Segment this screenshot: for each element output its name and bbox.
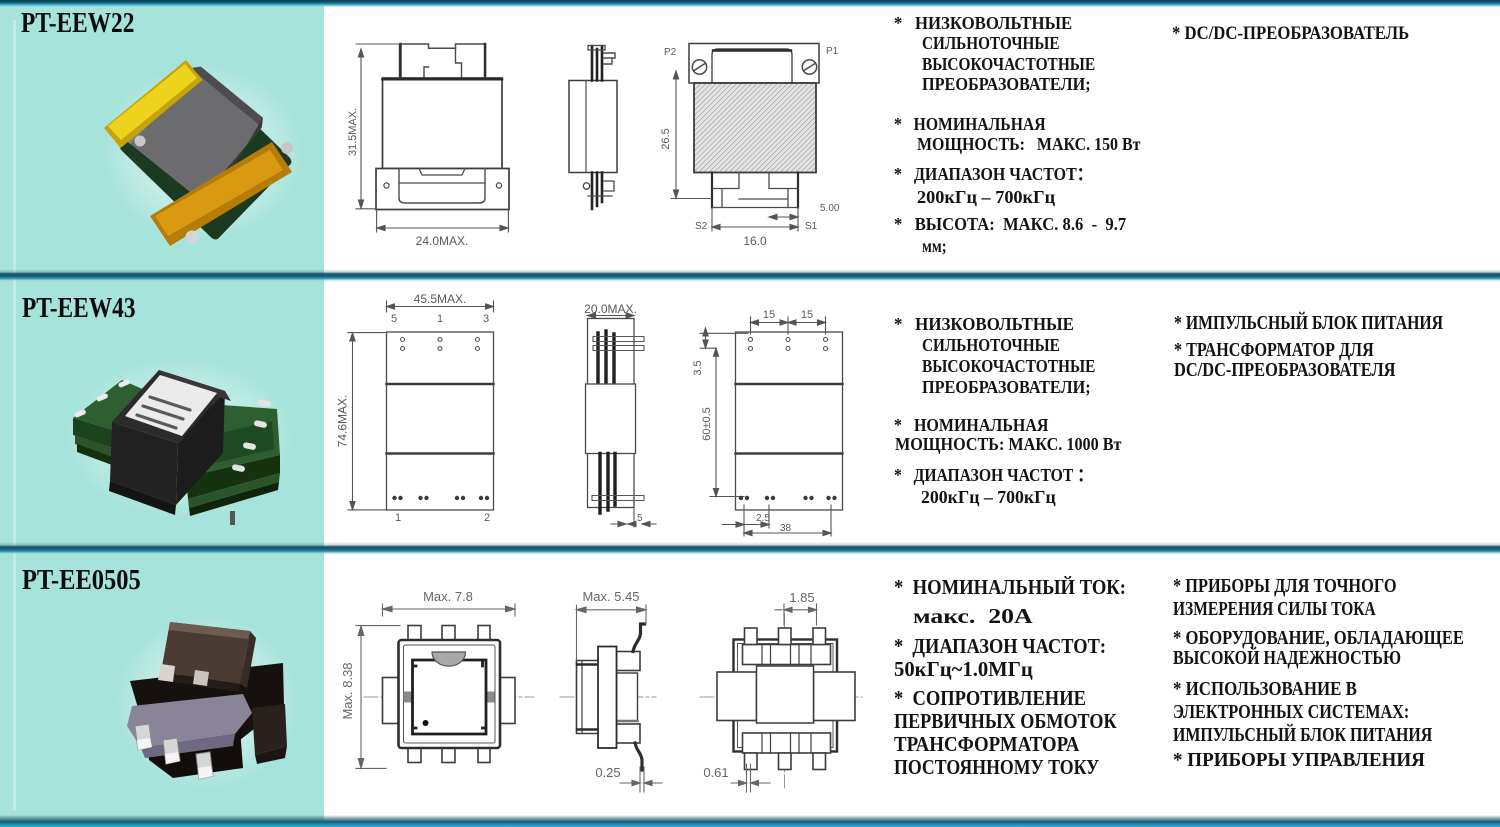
svg-text:31.5MAX.: 31.5MAX. [347,108,359,156]
svg-text:45.5MAX.: 45.5MAX. [414,292,467,306]
svg-text:38: 38 [780,523,792,534]
svg-text:60±0.5: 60±0.5 [701,407,713,441]
svg-text:S2: S2 [695,221,708,232]
svg-text:Max. 8.38: Max. 8.38 [340,662,355,719]
svg-text:3.5: 3.5 [692,360,704,375]
svg-text:0.61: 0.61 [703,765,728,780]
svg-text:3: 3 [483,313,489,325]
svg-text:1.85: 1.85 [789,590,814,605]
svg-text:2.5: 2.5 [756,513,770,524]
svg-text:P1: P1 [826,46,839,57]
svg-text:24.0MAX.: 24.0MAX. [416,234,469,248]
svg-text:15: 15 [763,309,775,321]
svg-text:5: 5 [391,313,397,325]
svg-text:P2: P2 [664,47,677,58]
svg-text:0.25: 0.25 [595,765,620,780]
svg-text:5: 5 [637,513,643,524]
svg-text:26.5: 26.5 [660,128,672,149]
svg-text:15: 15 [801,309,813,321]
svg-text:Max. 5.45: Max. 5.45 [582,589,639,604]
svg-text:Max. 7.8: Max. 7.8 [423,589,473,604]
svg-text:20.0MAX.: 20.0MAX. [584,302,637,316]
svg-text:1: 1 [437,313,443,325]
svg-text:16.0: 16.0 [743,234,767,248]
svg-text:S1: S1 [805,221,818,232]
svg-text:2: 2 [484,512,490,524]
svg-text:1: 1 [395,512,401,524]
svg-text:74.6MAX.: 74.6MAX. [336,395,350,448]
svg-text:5.00: 5.00 [820,203,840,214]
